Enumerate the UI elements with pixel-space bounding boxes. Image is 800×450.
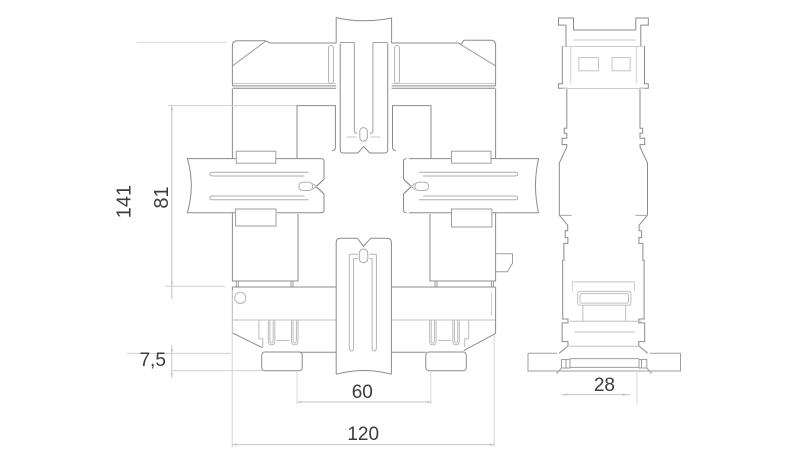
svg-text:7,5: 7,5 (139, 350, 165, 371)
svg-text:120: 120 (347, 424, 379, 445)
svg-text:28: 28 (594, 375, 615, 396)
svg-text:81: 81 (151, 186, 173, 208)
svg-text:60: 60 (352, 382, 373, 403)
svg-text:141: 141 (114, 185, 136, 218)
